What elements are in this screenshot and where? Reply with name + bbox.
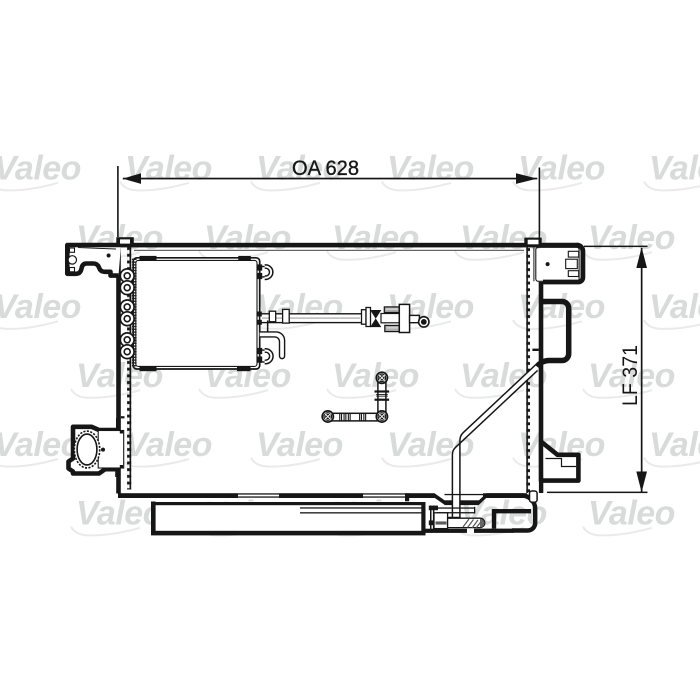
svg-text:Valeo: Valeo	[460, 357, 547, 395]
svg-text:Valeo: Valeo	[332, 219, 419, 257]
svg-text:Valeo: Valeo	[0, 288, 81, 326]
svg-text:OA 628: OA 628	[292, 156, 359, 180]
svg-text:Valeo: Valeo	[387, 150, 474, 188]
svg-text:Valeo: Valeo	[649, 288, 700, 326]
svg-text:Valeo: Valeo	[588, 495, 675, 533]
svg-text:Valeo: Valeo	[332, 357, 419, 395]
svg-text:Valeo: Valeo	[256, 426, 343, 464]
svg-text:Valeo: Valeo	[649, 426, 700, 464]
svg-text:Valeo: Valeo	[125, 426, 212, 464]
svg-text:Valeo: Valeo	[518, 150, 605, 188]
svg-text:Valeo: Valeo	[204, 219, 291, 257]
svg-text:Valeo: Valeo	[387, 426, 474, 464]
svg-text:Valeo: Valeo	[0, 426, 81, 464]
svg-text:Valeo: Valeo	[649, 150, 700, 188]
svg-text:Valeo: Valeo	[76, 495, 163, 533]
svg-text:Valeo: Valeo	[0, 150, 81, 188]
svg-text:Valeo: Valeo	[518, 288, 605, 326]
svg-text:Valeo: Valeo	[588, 219, 675, 257]
svg-text:LF 371: LF 371	[618, 345, 642, 406]
